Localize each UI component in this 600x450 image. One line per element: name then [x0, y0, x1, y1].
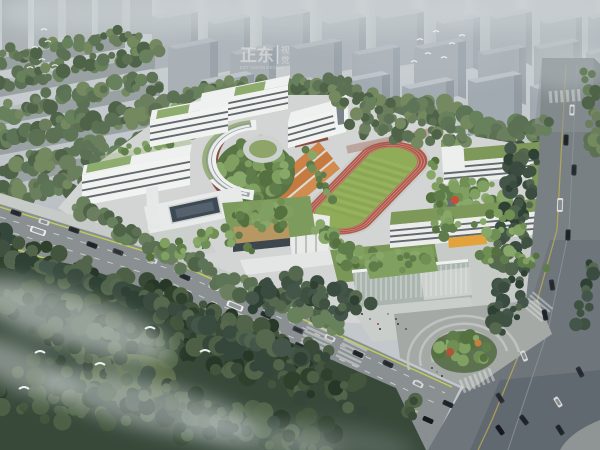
svg-text:觉: 觉	[281, 55, 290, 65]
svg-text:EST VISION DESIGN: EST VISION DESIGN	[240, 65, 284, 70]
svg-text:视: 视	[281, 45, 290, 55]
svg-text:正东: 正东	[240, 45, 274, 65]
